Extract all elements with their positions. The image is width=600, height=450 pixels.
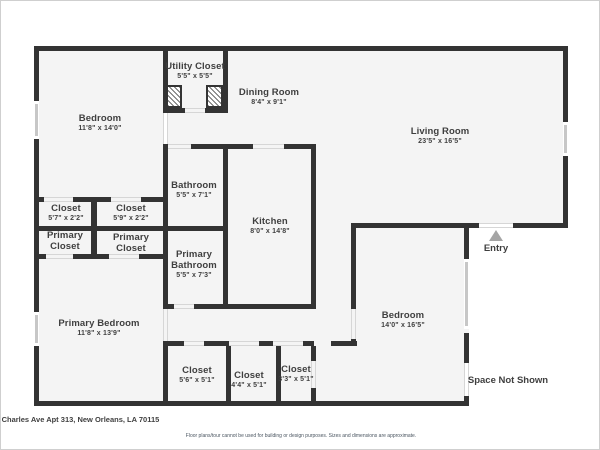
room-dims: 11'8" x 14'0" [78,124,121,134]
wall-segment [34,46,568,51]
wall-segment [34,254,46,259]
room-name: Primary Bathroom [166,249,222,271]
door-opening [44,197,73,202]
room-name: Bedroom [382,310,424,321]
window [464,259,469,329]
entry-arrow-icon [489,230,503,241]
address-text: St Charles Ave Apt 313, New Orleans, LA … [0,415,159,424]
space-not-shown-label: Space Not Shown [453,375,563,386]
room-name: Closet [234,370,264,381]
room-label-dining-room: Dining Room 8'4" x 9'1" [224,87,314,108]
disclaimer-text: Floor plans/tour cannot be used for buil… [151,433,451,439]
room-dims: 5'5" x 7'3" [176,271,212,281]
room-name: Bedroom [79,113,121,124]
door-opening [111,197,141,202]
wall-segment [163,226,224,231]
room-name: Closet [51,203,81,214]
room-name: Closet [182,365,212,376]
wall-segment [34,346,39,406]
room-name: Living Room [411,126,470,137]
door-opening [253,144,284,149]
room-name: Primary Closet [39,230,91,252]
room-name: Primary Bedroom [58,318,139,329]
entry-door-opening [479,223,513,228]
wall-segment [223,149,228,304]
room-name: Dining Room [239,87,299,98]
room-label-kitchen: Kitchen 8'0" x 14'8" [230,216,310,237]
window [34,101,39,139]
wall-segment [464,396,469,406]
room-dims: 5'5" x 5'5" [177,72,213,82]
door-opening [168,144,191,149]
wall-segment [34,401,469,406]
wall-segment [259,341,273,346]
wall-segment [34,197,44,202]
room-dims: 5'5" x 7'1" [176,191,212,201]
room-label-closet-bottom-a: Closet 5'6" x 5'1" [169,365,225,386]
wall-segment [464,333,469,363]
door-opening [109,254,139,259]
room-label-primary-closet-b: Primary Closet [105,232,157,254]
door-opening [46,254,73,259]
wall-segment [205,108,228,113]
floor-plan-image: Bedroom 11'8" x 14'0" Utility Closet 5'5… [0,0,600,450]
window-glass-icon [564,125,567,153]
door-opening [174,304,194,309]
room-label-bedroom-right: Bedroom 14'0" x 16'5" [353,310,453,331]
appliance-hatch-icon [206,85,223,108]
room-label-closet-left-a: Closet 5'7" x 2'2" [36,203,96,224]
wall-segment [311,388,316,401]
door-opening [229,341,259,346]
room-dims: 11'8" x 13'9" [77,329,120,339]
room-name: Closet [116,203,146,214]
room-name: Bathroom [171,180,217,191]
wall-segment [311,149,316,304]
door-opening [184,341,204,346]
room-dims: 8'4" x 9'1" [251,98,287,108]
room-name: Kitchen [252,216,288,227]
wall-segment [194,304,316,309]
wall-segment [513,223,568,228]
room-label-bathroom: Bathroom 5'5" x 7'1" [154,180,234,201]
room-label-closet-left-b: Closet 5'9" x 2'2" [101,203,161,224]
wall-segment [563,46,568,122]
room-dims: 8'0" x 14'8" [250,227,290,237]
room-label-utility-closet: Utility Closet 5'5" x 5'5" [155,61,235,82]
room-label-bedroom-top: Bedroom 11'8" x 14'0" [40,113,160,134]
room-dims: 5'6" x 5'1" [179,376,215,386]
wall-segment [331,341,357,346]
door-opening [185,108,205,113]
room-dims: 5'9" x 2'2" [113,214,149,224]
wall-segment [311,346,316,361]
wall-segment [73,254,109,259]
window-glass-icon [35,104,38,136]
appliance-hatch-icon [166,85,182,108]
room-label-closet-bottom-b: Closet 4'4" x 5'1" [226,370,272,391]
wall-segment [139,254,163,259]
room-dims: 3'3" x 5'1" [278,375,314,385]
window [563,122,568,156]
room-label-primary-bathroom: Primary Bathroom 5'5" x 7'3" [166,249,222,281]
room-name: Primary Closet [105,232,157,254]
window-glass-icon [465,262,468,326]
room-label-living-room: Living Room 23'5" x 16'5" [390,126,490,147]
room-label-primary-bedroom: Primary Bedroom 11'8" x 13'9" [34,318,164,339]
cased-opening [163,113,168,144]
wall-segment [563,156,568,228]
wall-segment [191,144,253,149]
wall-segment [34,46,39,101]
wall-segment [351,223,356,309]
room-label-primary-closet-a: Primary Closet [39,230,91,252]
room-dims: 14'0" x 16'5" [381,321,425,331]
room-dims: 5'7" x 2'2" [48,214,84,224]
wall-segment [351,223,479,228]
room-label-closet-bottom-c: Closet 3'3" x 5'1" [268,364,324,385]
room-dims: 4'4" x 5'1" [231,381,267,391]
room-dims: 23'5" x 16'5" [418,137,462,147]
room-name: Closet [281,364,311,375]
room-name: Utility Closet [165,61,224,72]
entry-label: Entry [466,243,526,254]
wall-segment [163,346,168,401]
